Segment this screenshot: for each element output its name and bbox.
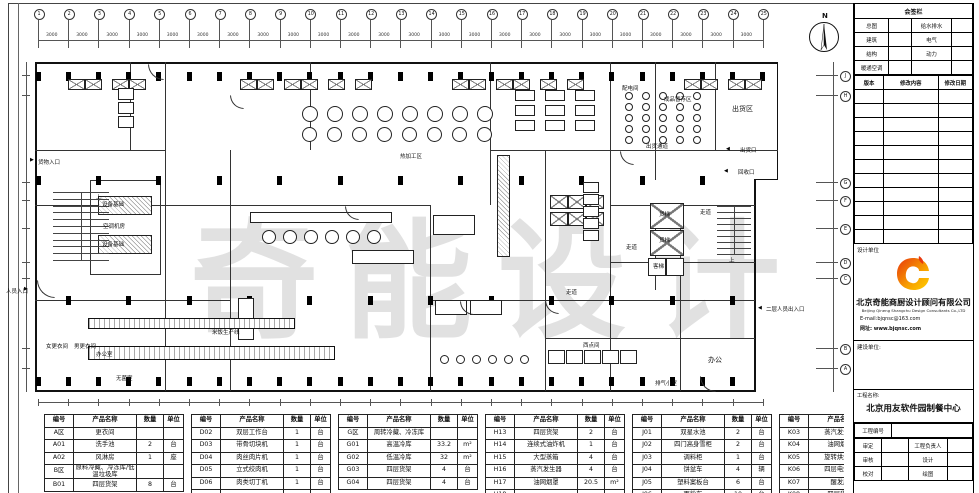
grid-row-bubble: H bbox=[840, 91, 851, 102]
sign-value bbox=[951, 33, 972, 47]
room-label: 排气小室 bbox=[655, 379, 677, 387]
table-cell: 调料柜 bbox=[662, 452, 725, 465]
table-cell: 连续式油炸机 bbox=[515, 440, 578, 453]
room-label: 货梯 bbox=[659, 236, 670, 244]
table-cell: 6 bbox=[725, 477, 752, 490]
field-label: 校对 bbox=[855, 467, 882, 481]
seat-dot bbox=[625, 103, 633, 111]
revision-cell bbox=[884, 104, 939, 118]
revision-header: 版本 bbox=[855, 76, 884, 90]
room-label: 货物入口 bbox=[38, 158, 60, 166]
prep-table bbox=[701, 79, 718, 90]
table-header: 单位 bbox=[605, 415, 625, 428]
equipment-block bbox=[515, 105, 535, 116]
dim-label: 3000 bbox=[741, 33, 752, 38]
column bbox=[66, 377, 71, 386]
column bbox=[398, 377, 403, 386]
grid-row-bubble: G bbox=[840, 178, 851, 189]
prep-table bbox=[68, 79, 85, 90]
build-unit-box: 建设单位: bbox=[854, 341, 973, 390]
table-cell: K03 bbox=[780, 427, 809, 440]
column bbox=[217, 176, 222, 185]
table-cell: 四层货架 bbox=[368, 477, 431, 490]
table-header: 数量 bbox=[137, 415, 164, 428]
table-cell: 4 bbox=[725, 465, 752, 478]
grid-col-line bbox=[491, 20, 492, 48]
revision-cell bbox=[855, 118, 884, 132]
column bbox=[36, 377, 41, 386]
equipment-block bbox=[515, 90, 535, 101]
column bbox=[609, 377, 614, 386]
revision-cell bbox=[884, 160, 939, 174]
table-cell: 台 bbox=[311, 427, 331, 440]
room-label: 出货口 bbox=[740, 146, 757, 154]
cooking-kettle bbox=[402, 127, 417, 142]
field-value bbox=[882, 439, 909, 453]
table-cell: 双星水池 bbox=[662, 427, 725, 440]
prep-table bbox=[85, 79, 102, 90]
cooking-kettle bbox=[327, 106, 343, 122]
table-cell: 台 bbox=[752, 452, 772, 465]
column bbox=[640, 176, 645, 185]
top-dim-line bbox=[38, 40, 763, 41]
grid-row-line bbox=[816, 95, 838, 96]
bottom-tick bbox=[431, 399, 432, 406]
revision-cell bbox=[884, 90, 939, 104]
wall-outer bbox=[35, 62, 778, 64]
grid-row-bubble: A bbox=[840, 364, 851, 375]
table-cell: m² bbox=[458, 452, 478, 465]
field-label: 工程负责人 bbox=[908, 439, 948, 453]
column bbox=[247, 377, 252, 386]
seat-dot bbox=[625, 136, 633, 144]
revision-cell bbox=[884, 202, 939, 216]
build-unit-label: 建设单位: bbox=[857, 343, 881, 351]
grid-col-line bbox=[672, 20, 673, 48]
right-dim-line bbox=[833, 62, 834, 392]
table-cell: 台 bbox=[164, 440, 184, 453]
bottom-tick bbox=[280, 399, 281, 406]
project-no-label: 工程编号 bbox=[855, 424, 892, 438]
grid-col-bubble: 14 bbox=[426, 9, 437, 20]
column bbox=[609, 72, 614, 81]
grid-col-bubble: 5 bbox=[154, 9, 165, 20]
sign-label: 给水排水 bbox=[912, 19, 952, 33]
table-cell: 32 bbox=[431, 452, 458, 465]
grid-row-bubble: E bbox=[840, 224, 851, 235]
column bbox=[428, 296, 433, 305]
compass-icon bbox=[808, 21, 840, 53]
grid-col-bubble: 10 bbox=[305, 9, 316, 20]
cooking-kettle bbox=[452, 106, 468, 122]
company-email: E-mail:bjqnsc@163.com bbox=[860, 316, 920, 322]
rack bbox=[583, 182, 599, 193]
revision-table: 版本修改内容修改日期 bbox=[854, 75, 973, 244]
dim-label: 3000 bbox=[378, 33, 389, 38]
dim-label: 3000 bbox=[137, 33, 148, 38]
sign-value bbox=[889, 61, 912, 75]
table-cell: 肉丝肉片机 bbox=[221, 452, 284, 465]
revision-cell bbox=[855, 146, 884, 160]
door-swing bbox=[37, 280, 55, 298]
grid-col-line bbox=[642, 20, 643, 48]
table-cell: 台 bbox=[164, 479, 184, 492]
room-label: 办公室 bbox=[96, 350, 113, 358]
cooking-kettle bbox=[302, 106, 318, 122]
prep-table bbox=[301, 79, 318, 90]
table-cell: 低温冷库 bbox=[368, 452, 431, 465]
table-cell: 面粉车 bbox=[662, 490, 725, 493]
bakery-oven bbox=[548, 350, 565, 364]
dim-label: 3000 bbox=[620, 33, 631, 38]
seat-dot bbox=[625, 125, 633, 133]
sign-value bbox=[951, 19, 972, 33]
grid-col-line bbox=[551, 20, 552, 48]
field-label: 审定 bbox=[855, 439, 882, 453]
sign-label: 建筑 bbox=[855, 33, 889, 47]
sign-label: 暖通空调 bbox=[855, 61, 889, 75]
entrance-arrow-icon: ▶ bbox=[30, 157, 34, 163]
wall-inner bbox=[35, 150, 165, 151]
title-block: 会签栏 总图给水排水建筑电气结构动力暖通空调 版本修改内容修改日期 设计单位 北… bbox=[853, 3, 974, 493]
revision-cell bbox=[938, 216, 972, 230]
grid-col-line bbox=[68, 20, 69, 48]
grid-col-line bbox=[189, 20, 190, 48]
table-header: 产品名称 bbox=[368, 415, 431, 428]
table-cell: 4 bbox=[431, 477, 458, 490]
prep-table bbox=[684, 79, 701, 90]
column bbox=[307, 377, 312, 386]
table-cell: A02 bbox=[45, 452, 74, 465]
revision-cell bbox=[938, 104, 972, 118]
production-line bbox=[250, 212, 392, 223]
wash-unit bbox=[470, 300, 502, 315]
cooking-kettle bbox=[377, 127, 392, 142]
table-cell: 四层货架 bbox=[368, 465, 431, 478]
rack bbox=[583, 230, 599, 241]
grid-row-line bbox=[816, 368, 838, 369]
table-cell: 10 bbox=[725, 490, 752, 493]
prep-table bbox=[540, 79, 557, 90]
table-cell: 1 bbox=[284, 477, 311, 490]
revision-cell bbox=[938, 160, 972, 174]
grid-col-line bbox=[763, 20, 764, 48]
revision-cell bbox=[938, 118, 972, 132]
grid-row-bubble: D bbox=[840, 258, 851, 269]
cold-room-shelf bbox=[497, 155, 510, 257]
field-value bbox=[882, 453, 909, 467]
equipment-table: 编号产品名称数量单位K03蒸汽发生器3台K04油网烟罩9.4m²K05旋转烘烤炉… bbox=[779, 414, 844, 493]
bottom-tick bbox=[189, 399, 190, 406]
cooking-kettle bbox=[427, 127, 442, 142]
table-cell: 四层电焗炉 bbox=[809, 465, 845, 478]
table-cell: m² bbox=[605, 477, 625, 490]
table-cell: D03 bbox=[192, 440, 221, 453]
table-header: 编号 bbox=[339, 415, 368, 428]
grid-row-line bbox=[816, 278, 838, 279]
table-cell: 肉类切丁机 bbox=[221, 477, 284, 490]
table-header: 编号 bbox=[45, 415, 74, 428]
grid-col-line bbox=[582, 20, 583, 48]
grid-row-bubble: J bbox=[840, 71, 851, 82]
left-tick bbox=[22, 95, 30, 96]
table-cell bbox=[221, 490, 284, 493]
revision-cell bbox=[855, 90, 884, 104]
seat-dot bbox=[676, 114, 684, 122]
cooking-kettle bbox=[452, 127, 467, 142]
table-cell bbox=[284, 490, 311, 493]
table-cell: 台 bbox=[311, 477, 331, 490]
grid-col-line bbox=[612, 20, 613, 48]
column bbox=[519, 377, 524, 386]
table-cell: 台 bbox=[752, 427, 772, 440]
table-header: 数量 bbox=[578, 415, 605, 428]
equipment-block bbox=[352, 250, 414, 264]
table-cell: H13 bbox=[486, 427, 515, 440]
bakery-oven bbox=[620, 350, 637, 364]
room-label: 西点间 bbox=[583, 341, 600, 349]
column bbox=[36, 176, 41, 185]
stair-tread bbox=[717, 254, 751, 255]
dim-label: 3000 bbox=[76, 33, 87, 38]
column bbox=[670, 296, 675, 305]
dim-label: 3000 bbox=[499, 33, 510, 38]
sign-title: 会签栏 bbox=[855, 4, 973, 19]
seat-dot bbox=[676, 103, 684, 111]
grid-col-line bbox=[249, 20, 250, 48]
sign-value bbox=[889, 19, 912, 33]
column bbox=[579, 377, 584, 386]
stock-pot bbox=[456, 355, 465, 364]
room-label: 设备基础 bbox=[102, 240, 124, 248]
bottom-tick bbox=[582, 399, 583, 406]
dim-label: 3000 bbox=[288, 33, 299, 38]
prep-table bbox=[567, 79, 584, 90]
entrance-arrow-icon: ◀ bbox=[758, 305, 762, 311]
grid-col-line bbox=[310, 20, 311, 48]
table-cell: K06 bbox=[780, 465, 809, 478]
prep-table bbox=[745, 79, 762, 90]
table-cell: 风淋房 bbox=[74, 452, 137, 465]
table-cell: 高温冷库 bbox=[368, 440, 431, 453]
table-header: 编号 bbox=[192, 415, 221, 428]
table-cell: 2 bbox=[725, 440, 752, 453]
table-cell: H17 bbox=[486, 477, 515, 490]
table-cell: 更衣间 bbox=[74, 427, 137, 440]
table-cell: J06 bbox=[633, 490, 662, 493]
table-cell: 台 bbox=[311, 440, 331, 453]
table-cell bbox=[605, 490, 625, 493]
company-name-en: Beijing Qineng Shangchu Design Consultan… bbox=[854, 308, 973, 313]
table-cell: 1 bbox=[578, 440, 605, 453]
shelf bbox=[118, 102, 134, 114]
table-cell: 1 bbox=[137, 452, 164, 465]
wall-inner bbox=[90, 274, 161, 275]
table-cell: H14 bbox=[486, 440, 515, 453]
dim-label: 3000 bbox=[46, 33, 57, 38]
revision-cell bbox=[855, 202, 884, 216]
left-tick bbox=[22, 348, 30, 349]
table-cell: 4 bbox=[431, 465, 458, 478]
grid-col-bubble: 2 bbox=[64, 9, 75, 20]
column bbox=[640, 72, 645, 81]
column bbox=[458, 176, 463, 185]
table-cell: 2 bbox=[578, 427, 605, 440]
table-cell: 旋转烘烤炉 bbox=[809, 452, 845, 465]
grid-col-bubble: 7 bbox=[215, 9, 226, 20]
room-label: 走道 bbox=[566, 288, 577, 296]
table-cell: 大型蒸箱 bbox=[515, 452, 578, 465]
room-label: 回收口 bbox=[738, 168, 755, 176]
table-cell: 台 bbox=[752, 440, 772, 453]
room-label: 设备基础 bbox=[102, 200, 124, 208]
prep-table bbox=[284, 79, 301, 90]
table-cell: 双层工作台 bbox=[221, 427, 284, 440]
table-cell: 醒发库 bbox=[809, 477, 845, 490]
wall-inner bbox=[165, 62, 166, 391]
rack bbox=[583, 218, 599, 229]
column bbox=[609, 296, 614, 305]
table-cell: 台 bbox=[311, 452, 331, 465]
dim-label: 3000 bbox=[167, 33, 178, 38]
wall-inner bbox=[545, 150, 546, 391]
grid-col-line bbox=[461, 20, 462, 48]
left-tick bbox=[22, 262, 30, 263]
dim-label: 3000 bbox=[408, 33, 419, 38]
project-no-value bbox=[892, 424, 973, 438]
round-table bbox=[283, 230, 297, 244]
stock-pot bbox=[472, 355, 481, 364]
drawing-sheet: 奇能设计 13000230003300043000530006300073000… bbox=[0, 0, 979, 493]
revision-cell bbox=[884, 174, 939, 188]
project-name: 北京用友软件园制餐中心 bbox=[854, 402, 973, 414]
column bbox=[307, 296, 312, 305]
table-header: 数量 bbox=[725, 415, 752, 428]
floor-plan: 奇能设计 13000230003300043000530006300073000… bbox=[0, 0, 853, 412]
equipment-block bbox=[575, 120, 595, 131]
prep-table bbox=[496, 79, 513, 90]
wall-inner bbox=[160, 180, 161, 274]
room-label: 出货通道 bbox=[646, 142, 668, 150]
grid-row-line bbox=[816, 348, 838, 349]
table-cell: 四门高身雪柜 bbox=[662, 440, 725, 453]
equipment-block bbox=[545, 90, 565, 101]
stair-tread bbox=[53, 260, 109, 261]
room-label: 无菌室 bbox=[116, 374, 133, 382]
table-header: 单位 bbox=[311, 415, 331, 428]
table-cell bbox=[164, 465, 184, 479]
table-cell: D05 bbox=[192, 465, 221, 478]
field-label: 审核 bbox=[855, 453, 882, 467]
bottom-tick bbox=[642, 399, 643, 406]
table-cell bbox=[311, 490, 331, 493]
prep-table bbox=[513, 79, 530, 90]
equipment-table: 编号产品名称数量单位A区更衣间A01洗手池2台A02风淋房1座B区原料冷藏、冷冻… bbox=[44, 414, 184, 492]
grid-col-bubble: 20 bbox=[607, 9, 618, 20]
table-cell bbox=[515, 490, 578, 493]
table-header: 编号 bbox=[633, 415, 662, 428]
field-value bbox=[948, 439, 973, 453]
equipment-table: 编号产品名称数量单位H13四层货架2台H14连续式油炸机1台H15大型蒸箱4台H… bbox=[485, 414, 625, 493]
table-cell: 1 bbox=[284, 465, 311, 478]
column bbox=[458, 377, 463, 386]
table-cell: 4 bbox=[578, 465, 605, 478]
company-name-cn: 北京奇能商厨设计顾问有限公司 bbox=[854, 296, 973, 308]
work-table bbox=[550, 195, 568, 209]
revision-cell bbox=[855, 216, 884, 230]
table-header: 编号 bbox=[780, 415, 809, 428]
grid-col-bubble: 19 bbox=[577, 9, 588, 20]
table-cell: K05 bbox=[780, 452, 809, 465]
column bbox=[398, 176, 403, 185]
room-label: 办公 bbox=[708, 355, 722, 365]
column bbox=[368, 377, 373, 386]
equipment-block bbox=[575, 105, 595, 116]
table-cell: G02 bbox=[339, 452, 368, 465]
revision-header: 修改日期 bbox=[938, 76, 972, 90]
sign-label: 总图 bbox=[855, 19, 889, 33]
cooking-kettle bbox=[402, 106, 418, 122]
column bbox=[156, 377, 161, 386]
wall-outer bbox=[35, 62, 37, 392]
grid-col-bubble: 24 bbox=[728, 9, 739, 20]
grid-col-bubble: 18 bbox=[547, 9, 558, 20]
seat-dot bbox=[642, 114, 650, 122]
table-cell: 台 bbox=[752, 490, 772, 493]
column bbox=[519, 176, 524, 185]
revision-cell bbox=[855, 104, 884, 118]
table-cell: 四层货架 bbox=[809, 490, 845, 493]
dim-label: 3000 bbox=[348, 33, 359, 38]
table-header: 产品名称 bbox=[809, 415, 845, 428]
column bbox=[96, 377, 101, 386]
wall-inner bbox=[35, 300, 230, 301]
dim-label: 3000 bbox=[590, 33, 601, 38]
left-tick bbox=[22, 228, 30, 229]
grid-col-bubble: 25 bbox=[758, 9, 769, 20]
dim-label: 3000 bbox=[680, 33, 691, 38]
round-table bbox=[367, 230, 381, 244]
stair-rail bbox=[734, 206, 735, 254]
door-swing bbox=[620, 151, 634, 165]
bakery-oven bbox=[566, 350, 583, 364]
table-header: 单位 bbox=[164, 415, 184, 428]
dim-label: 3000 bbox=[559, 33, 570, 38]
grid-col-bubble: 13 bbox=[396, 9, 407, 20]
room-label: 上 bbox=[729, 256, 735, 264]
column bbox=[640, 377, 645, 386]
sign-label: 结构 bbox=[855, 47, 889, 61]
table-cell: 四层货架 bbox=[74, 479, 137, 492]
grid-col-line bbox=[219, 20, 220, 48]
room-label: 女更衣间 bbox=[46, 342, 68, 350]
shelf bbox=[118, 116, 134, 128]
revision-cell bbox=[884, 146, 939, 160]
column bbox=[187, 377, 192, 386]
room-label: 米饭生产线 bbox=[212, 328, 240, 336]
wall-inner bbox=[655, 62, 656, 180]
seat-dot bbox=[693, 114, 701, 122]
wall-outer bbox=[35, 390, 756, 392]
table-cell: G04 bbox=[339, 477, 368, 490]
grid-row-line bbox=[816, 200, 838, 201]
table-header: 产品名称 bbox=[74, 415, 137, 428]
room-label: 男更衣间 bbox=[74, 342, 96, 350]
company-website: 网址: www.bjqnsc.com bbox=[860, 325, 921, 332]
seat-dot bbox=[642, 92, 650, 100]
equipment-schedule: 编号产品名称数量单位A区更衣间A01洗手池2台A02风淋房1座B区原料冷藏、冷冻… bbox=[44, 414, 844, 493]
table-cell: 2 bbox=[137, 440, 164, 453]
